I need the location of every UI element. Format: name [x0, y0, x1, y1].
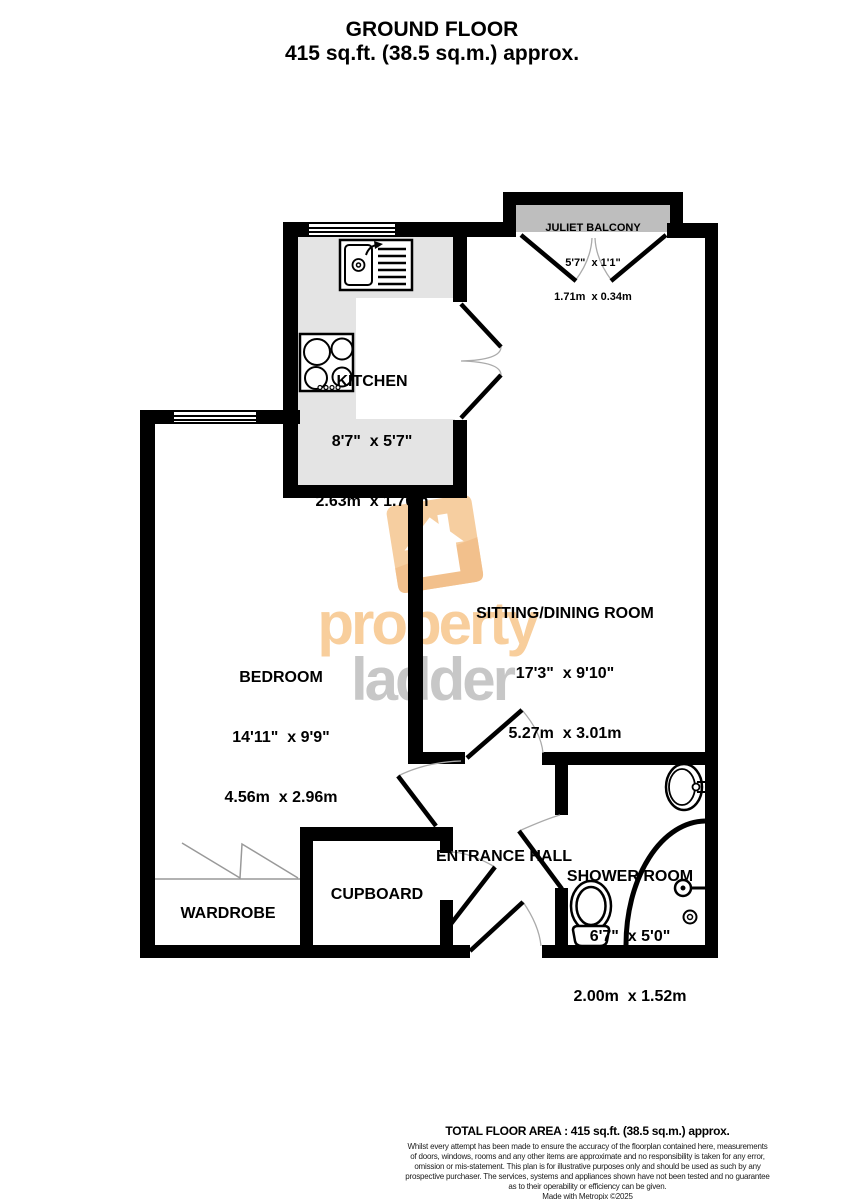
- sitting-room-label: SITTING/DINING ROOM 17'3" x 9'10" 5.27m …: [476, 564, 654, 784]
- room-dims-imperial: 17'3" x 9'10": [476, 664, 654, 684]
- room-dims-imperial: 14'11" x 9'9": [225, 728, 338, 748]
- balcony-label: JULIET BALCONY 5'7" x 1'1" 1.71m x 0.34m: [545, 200, 640, 327]
- entrance-hall-label: ENTRANCE HALL: [436, 847, 572, 867]
- room-dims-metric: 1.71m x 0.34m: [545, 292, 640, 304]
- footer: TOTAL FLOOR AREA : 415 sq.ft. (38.5 sq.m…: [330, 1124, 845, 1200]
- wardrobe-rail-icon: [155, 843, 300, 879]
- room-dims-metric: 4.56m x 2.96m: [225, 788, 338, 808]
- kitchen-label: KITCHEN 8'7" x 5'7" 2.63m x 1.70m: [316, 332, 429, 552]
- disclaimer-line: prospective purchaser. The services, sys…: [330, 1172, 845, 1182]
- plan-symbols: [0, 0, 864, 1200]
- room-name: JULIET BALCONY: [545, 223, 640, 235]
- floor-plan-page: GROUND FLOOR 415 sq.ft. (38.5 sq.m.) app…: [0, 0, 864, 1200]
- room-name: SITTING/DINING ROOM: [476, 604, 654, 624]
- room-dims-imperial: 6'7" x 5'0": [567, 927, 693, 947]
- door-swing: [461, 304, 501, 418]
- sink-icon: [340, 240, 412, 290]
- room-name: KITCHEN: [316, 372, 429, 392]
- room-dims-metric: 5.27m x 3.01m: [476, 724, 654, 744]
- page-subtitle: 415 sq.ft. (38.5 sq.m.) approx.: [0, 42, 864, 66]
- room-dims-imperial: 8'7" x 5'7": [316, 432, 429, 452]
- cupboard-label: CUPBOARD: [331, 885, 423, 905]
- disclaimer-line: as to their operability or efficiency ca…: [330, 1182, 845, 1192]
- disclaimer-line: Whilst every attempt has been made to en…: [330, 1142, 845, 1152]
- disclaimer-line: of doors, windows, rooms and any other i…: [330, 1152, 845, 1162]
- page-title: GROUND FLOOR: [0, 18, 864, 42]
- disclaimer-line: omission or mis-statement. This plan is …: [330, 1162, 845, 1172]
- wardrobe-label: WARDROBE: [180, 904, 275, 924]
- basin-icon: [666, 764, 705, 810]
- door-swing: [398, 761, 461, 826]
- total-floor-area: TOTAL FLOOR AREA : 415 sq.ft. (38.5 sq.m…: [330, 1124, 845, 1139]
- room-dims-metric: 2.00m x 1.52m: [567, 987, 693, 1007]
- room-name: BEDROOM: [225, 668, 338, 688]
- door-swing: [470, 902, 541, 951]
- shower-room-label: SHOWER ROOM 6'7" x 5'0" 2.00m x 1.52m: [567, 827, 693, 1047]
- room-dims-imperial: 5'7" x 1'1": [545, 258, 640, 270]
- room-name: SHOWER ROOM: [567, 867, 693, 887]
- bedroom-label: BEDROOM 14'11" x 9'9" 4.56m x 2.96m: [225, 628, 338, 848]
- credit-line: Made with Metropix ©2025: [330, 1192, 845, 1200]
- room-dims-metric: 2.63m x 1.70m: [316, 492, 429, 512]
